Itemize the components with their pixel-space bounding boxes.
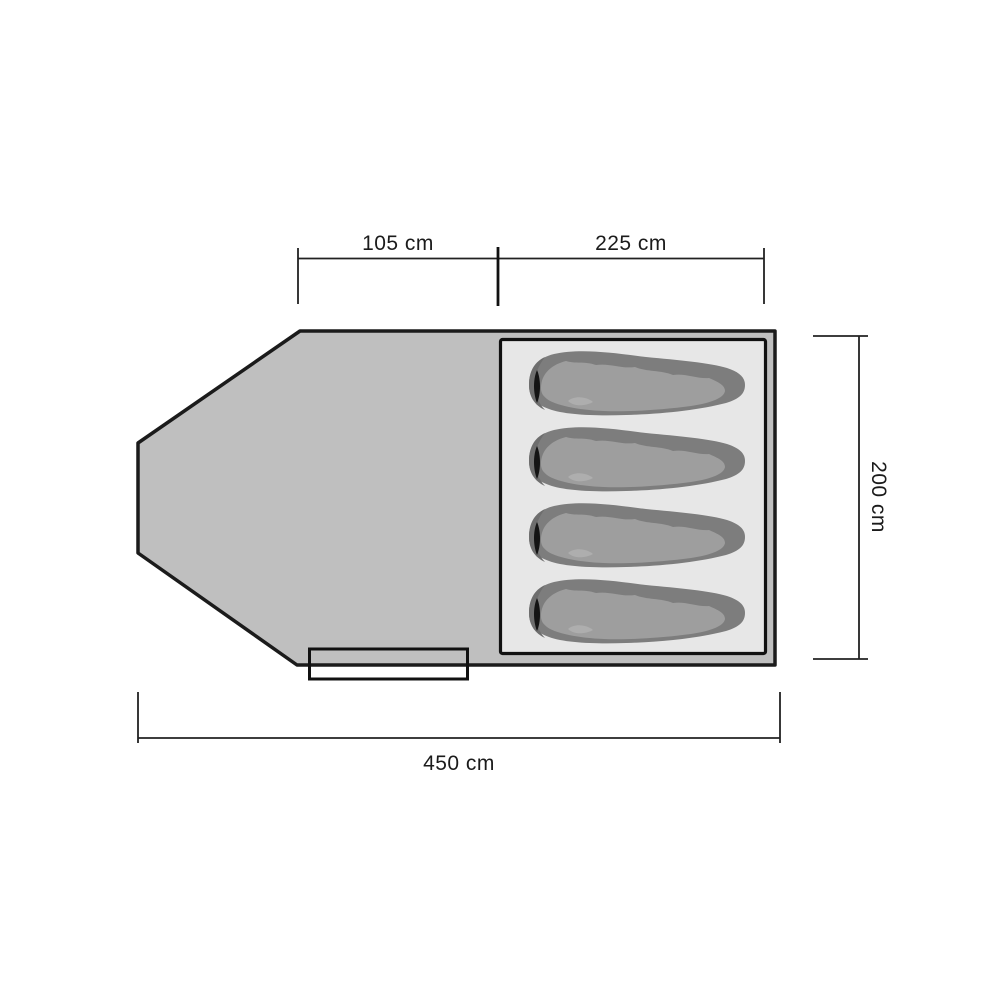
dimension-right: 200 cm	[813, 336, 890, 659]
dimension-bottom: 450 cm	[138, 692, 780, 775]
sleeping-area-length-label: 225 cm	[595, 232, 667, 255]
tent-total-length-label: 450 cm	[423, 752, 495, 775]
porch-length-label: 105 cm	[362, 232, 434, 255]
dimension-top: 105 cm 225 cm	[298, 232, 764, 306]
tent-floorplan-figure: 105 cm 225 cm 200 cm 450 cm	[0, 0, 1000, 1000]
floorplan-svg: 105 cm 225 cm 200 cm 450 cm	[0, 0, 1000, 1000]
tent-width-label: 200 cm	[867, 461, 890, 533]
